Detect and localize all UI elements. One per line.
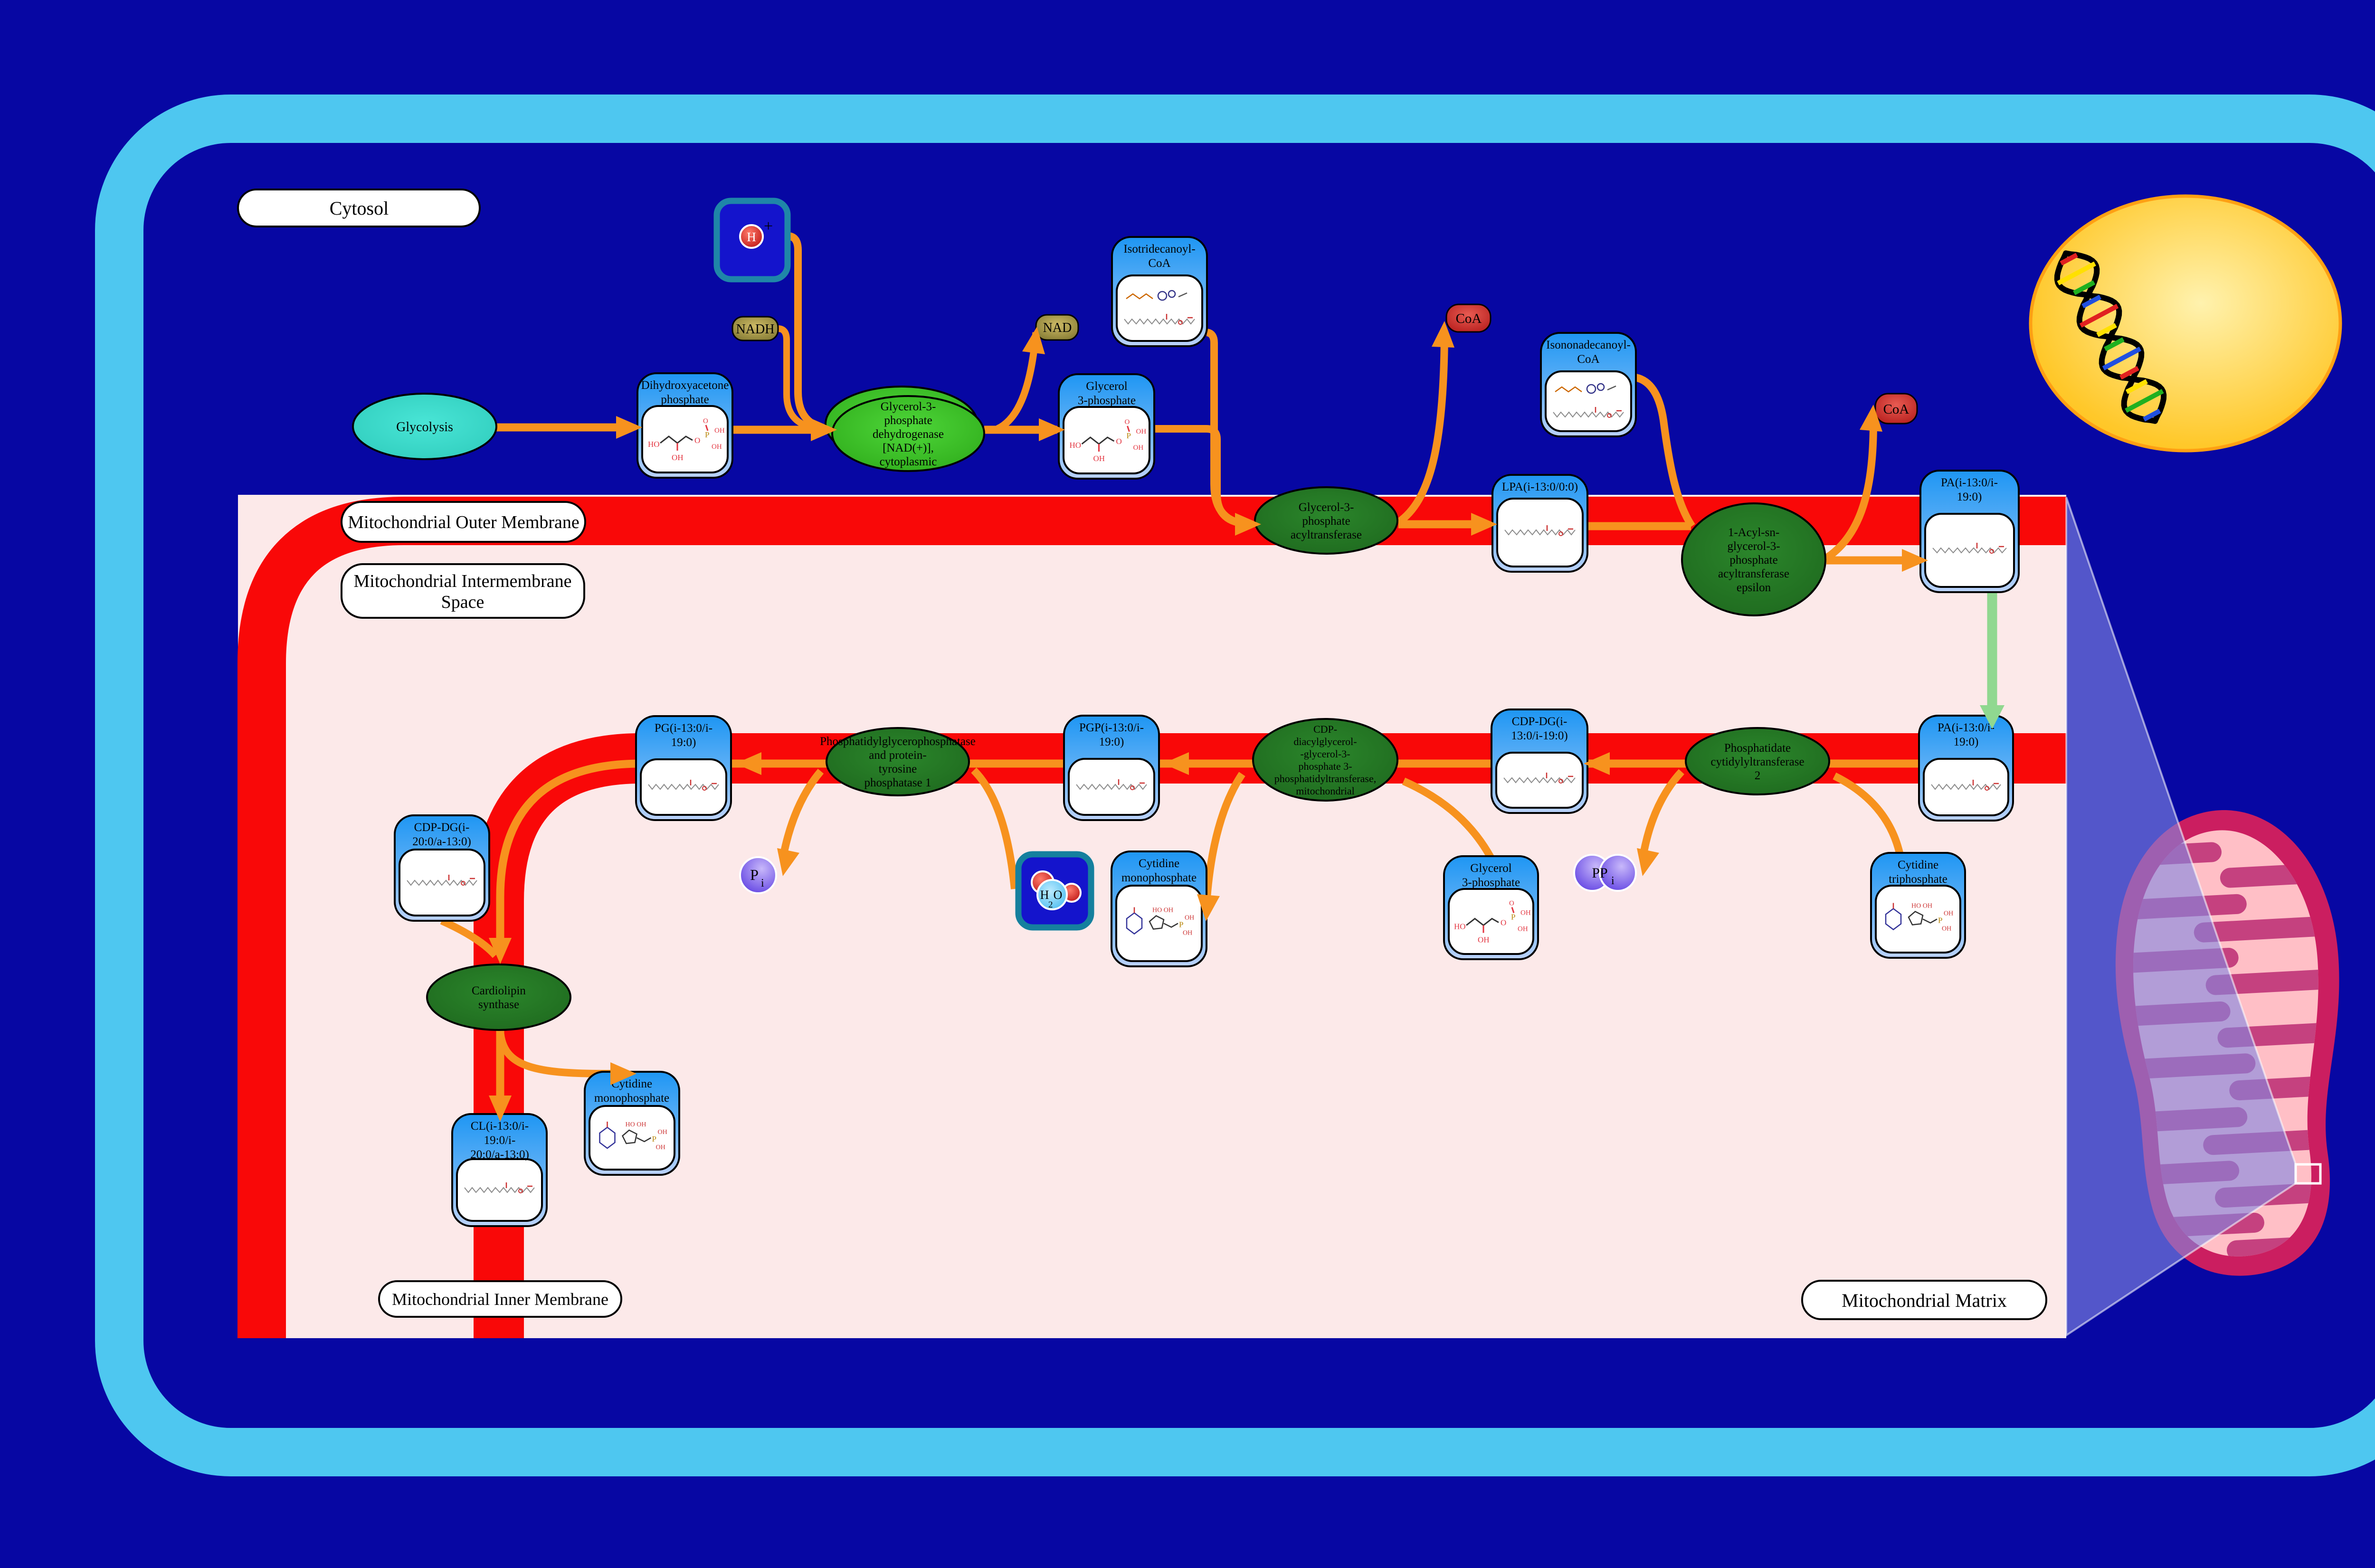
svg-text:P: P xyxy=(1938,916,1942,925)
svg-text:O: O xyxy=(1125,418,1130,426)
svg-text:phosphate: phosphate xyxy=(661,393,709,406)
svg-text:O: O xyxy=(1501,918,1506,927)
svg-text:20:0/a-13:0): 20:0/a-13:0) xyxy=(470,1148,529,1161)
svg-text:CoA: CoA xyxy=(1148,257,1170,270)
svg-text:cytidylyltransferase: cytidylyltransferase xyxy=(1710,756,1804,768)
svg-text:OH: OH xyxy=(1093,454,1105,463)
svg-text:i: i xyxy=(1611,875,1615,887)
svg-text:OH: OH xyxy=(1133,444,1144,452)
svg-text:Dihydroxyacetone: Dihydroxyacetone xyxy=(641,379,729,392)
svg-text:NADH: NADH xyxy=(736,322,775,337)
svg-text:Mitochondrial Intermembrane: Mitochondrial Intermembrane xyxy=(353,571,571,591)
svg-text:PGP(i-13:0/i-: PGP(i-13:0/i- xyxy=(1079,721,1144,734)
svg-text:monophosphate: monophosphate xyxy=(1121,871,1197,884)
svg-text:HO: HO xyxy=(1454,922,1466,931)
svg-text:2: 2 xyxy=(1048,900,1053,910)
svg-text:19:0): 19:0) xyxy=(1954,736,1979,748)
svg-text:3-phosphate: 3-phosphate xyxy=(1078,394,1136,407)
svg-text:2: 2 xyxy=(1755,769,1761,782)
svg-text:acyltransferase: acyltransferase xyxy=(1718,567,1789,580)
svg-text:acyltransferase: acyltransferase xyxy=(1291,529,1362,541)
svg-text:+: + xyxy=(764,217,773,235)
svg-text:OH: OH xyxy=(656,1144,665,1151)
svg-text:Mitochondrial Inner Membrane: Mitochondrial Inner Membrane xyxy=(392,1290,608,1309)
svg-text:19:0): 19:0) xyxy=(671,736,696,749)
svg-text:O: O xyxy=(1509,900,1514,907)
svg-text:PA(i-13:0/i-: PA(i-13:0/i- xyxy=(1941,476,1998,489)
svg-text:H: H xyxy=(1040,888,1049,902)
svg-text:OH: OH xyxy=(1183,930,1192,937)
svg-text:HO OH: HO OH xyxy=(626,1121,646,1128)
svg-text:phosphate: phosphate xyxy=(1729,554,1777,567)
svg-text:19:0): 19:0) xyxy=(1957,491,1982,503)
svg-text:triphosphate: triphosphate xyxy=(1889,873,1947,886)
svg-text:OH: OH xyxy=(658,1129,667,1136)
svg-text:synthase: synthase xyxy=(478,998,519,1011)
svg-text:Glycerol-3-: Glycerol-3- xyxy=(1299,501,1354,514)
svg-text:OH: OH xyxy=(1136,428,1147,435)
svg-text:cytoplasmic: cytoplasmic xyxy=(880,455,937,468)
svg-text:Mitochondrial Outer Membrane: Mitochondrial Outer Membrane xyxy=(348,512,579,532)
svg-text:OH: OH xyxy=(1478,935,1490,945)
svg-text:mitochondrial: mitochondrial xyxy=(1296,785,1354,797)
svg-text:Space: Space xyxy=(441,592,484,612)
svg-text:tyrosine: tyrosine xyxy=(879,763,917,775)
svg-text:phosphatidyltransferase,: phosphatidyltransferase, xyxy=(1274,773,1376,784)
svg-text:LPA(i-13:0/0:0): LPA(i-13:0/0:0) xyxy=(1502,481,1578,493)
svg-text:epsilon: epsilon xyxy=(1737,581,1771,594)
svg-text:Phosphatidylglycerophosphatase: Phosphatidylglycerophosphatase xyxy=(820,735,976,748)
svg-text:3-phosphate: 3-phosphate xyxy=(1462,876,1520,889)
svg-text:CDP-DG(i-: CDP-DG(i- xyxy=(1512,715,1567,728)
svg-text:Glycerol: Glycerol xyxy=(1470,862,1512,875)
svg-text:Cytosol: Cytosol xyxy=(330,198,389,219)
svg-text:phosphate 3-: phosphate 3- xyxy=(1298,760,1352,772)
svg-text:diacylglycerol-: diacylglycerol- xyxy=(1293,736,1357,747)
svg-text:Glycolysis: Glycolysis xyxy=(396,420,453,435)
svg-text:P: P xyxy=(750,866,759,883)
svg-text:phosphate: phosphate xyxy=(884,414,932,427)
svg-text:dehydrogenase: dehydrogenase xyxy=(873,428,944,441)
svg-text:Phosphatidate: Phosphatidate xyxy=(1724,742,1791,755)
svg-text:and protein-: and protein- xyxy=(869,749,926,762)
svg-text:Glycerol: Glycerol xyxy=(1086,380,1128,393)
svg-text:19:0/i-: 19:0/i- xyxy=(484,1134,516,1147)
svg-text:CDP-: CDP- xyxy=(1313,723,1337,735)
svg-text:20:0/a-13:0): 20:0/a-13:0) xyxy=(412,835,471,848)
svg-text:OH: OH xyxy=(1185,915,1194,922)
svg-text:OH: OH xyxy=(1518,926,1528,933)
svg-text:P: P xyxy=(652,1134,656,1143)
svg-text:CoA: CoA xyxy=(1883,402,1909,417)
svg-text:19:0): 19:0) xyxy=(1099,736,1124,748)
svg-text:Isononadecanoyl-: Isononadecanoyl- xyxy=(1546,339,1631,351)
svg-text:P: P xyxy=(1511,913,1515,922)
svg-text:OH: OH xyxy=(672,453,684,462)
svg-text:OH: OH xyxy=(1942,926,1951,933)
svg-text:O: O xyxy=(703,417,708,425)
svg-text:phosphate: phosphate xyxy=(1302,515,1350,528)
svg-text:OH: OH xyxy=(712,443,722,451)
svg-text:HO: HO xyxy=(1070,441,1082,450)
svg-text:PG(i-13:0/i-: PG(i-13:0/i- xyxy=(655,722,712,735)
svg-text:1-Acyl-sn-: 1-Acyl-sn- xyxy=(1728,526,1779,539)
svg-text:OH: OH xyxy=(1520,909,1531,917)
svg-text:PA(i-13:0/i-: PA(i-13:0/i- xyxy=(1938,721,1995,734)
svg-text:P: P xyxy=(705,430,709,439)
svg-text:NAD: NAD xyxy=(1043,321,1072,335)
svg-text:PP: PP xyxy=(1592,865,1607,881)
svg-text:HO OH: HO OH xyxy=(1152,907,1173,914)
svg-text:Cardiolipin: Cardiolipin xyxy=(472,984,526,997)
svg-text:O: O xyxy=(1054,888,1063,902)
svg-text:OH: OH xyxy=(1944,910,1953,917)
svg-text:glycerol-3-: glycerol-3- xyxy=(1727,540,1780,553)
svg-text:Cytidine: Cytidine xyxy=(1139,857,1179,870)
svg-text:CL(i-13:0/i-: CL(i-13:0/i- xyxy=(471,1120,529,1133)
svg-text:Cytidine: Cytidine xyxy=(1898,859,1938,871)
svg-text:H: H xyxy=(747,230,756,244)
svg-text:i: i xyxy=(761,877,764,889)
svg-text:Glycerol-3-: Glycerol-3- xyxy=(881,400,936,413)
svg-text:-glycerol-3-: -glycerol-3- xyxy=(1300,748,1350,760)
svg-text:monophosphate: monophosphate xyxy=(594,1092,669,1105)
svg-text:[NAD(+)],: [NAD(+)], xyxy=(883,442,934,454)
svg-text:CoA: CoA xyxy=(1577,353,1599,366)
svg-text:13:0/i-19:0): 13:0/i-19:0) xyxy=(1511,729,1567,742)
svg-text:CoA: CoA xyxy=(1456,311,1482,326)
svg-text:Isotridecanoyl-: Isotridecanoyl- xyxy=(1123,243,1195,255)
svg-text:HO OH: HO OH xyxy=(1911,903,1932,910)
svg-text:phosphatase 1: phosphatase 1 xyxy=(864,776,931,789)
svg-text:O: O xyxy=(694,436,700,445)
svg-text:O: O xyxy=(1116,437,1122,446)
svg-text:P: P xyxy=(1179,920,1183,929)
svg-text:P: P xyxy=(1127,431,1131,440)
svg-text:CDP-DG(i-: CDP-DG(i- xyxy=(414,821,470,834)
svg-text:HO: HO xyxy=(648,440,660,449)
svg-text:OH: OH xyxy=(714,427,725,435)
svg-text:Mitochondrial Matrix: Mitochondrial Matrix xyxy=(1842,1290,2007,1311)
